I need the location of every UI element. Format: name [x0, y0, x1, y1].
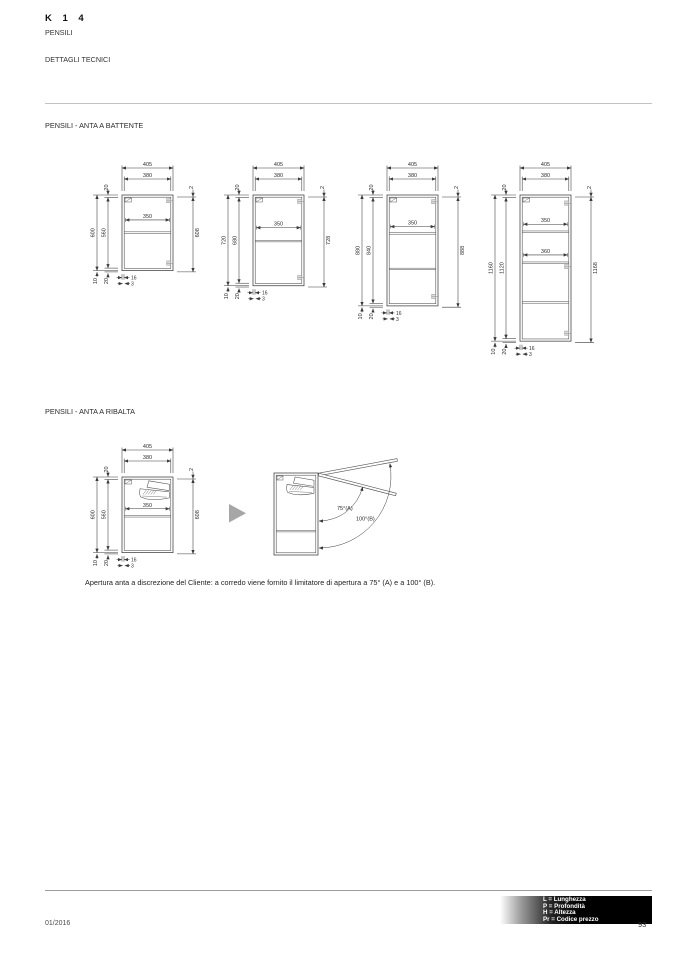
flap-door-75 [318, 473, 396, 496]
page-number: 93 [638, 920, 646, 929]
svg-text:100°(B): 100°(B) [356, 517, 375, 523]
svg-text:350: 350 [408, 221, 417, 227]
svg-text:380: 380 [143, 455, 152, 461]
svg-text:405: 405 [408, 162, 417, 168]
svg-text:560: 560 [102, 510, 108, 519]
svg-text:840: 840 [367, 246, 373, 255]
svg-text:680: 680 [233, 236, 239, 245]
svg-text:10: 10 [224, 293, 230, 299]
svg-text:1160: 1160 [489, 262, 495, 274]
right-arrow-icon [229, 504, 246, 523]
ribalta-caption: Apertura anta a discrezione del Cliente:… [85, 578, 645, 587]
svg-text:380: 380 [274, 173, 283, 179]
section-title-battente: PENSILI - ANTA A BATTENTE [45, 121, 143, 130]
svg-text:405: 405 [143, 162, 152, 168]
bottom-divider [45, 890, 652, 891]
svg-text:20: 20 [104, 466, 110, 472]
svg-text:75°(A): 75°(A) [337, 506, 353, 512]
svg-text:350: 350 [274, 222, 283, 228]
battente-cabinet-2: 4053807206802027281020163350 [222, 162, 332, 303]
svg-text:3: 3 [262, 297, 265, 303]
ribalta-technical-drawings: 405380600560202608102016335075°(A)100°(B… [0, 430, 678, 578]
svg-text:350: 350 [143, 214, 152, 220]
catalog-page: K 1 4 PENSILI DETTAGLI TECNICI PENSILI -… [0, 0, 678, 959]
top-divider [45, 103, 652, 104]
svg-text:20: 20 [369, 184, 375, 190]
legend-item-price-code: Pr = Codice prezzo [543, 917, 599, 924]
svg-text:3: 3 [131, 564, 134, 570]
svg-text:2: 2 [587, 186, 593, 189]
svg-text:20: 20 [235, 184, 241, 190]
svg-text:20: 20 [104, 278, 110, 284]
svg-text:3: 3 [131, 282, 134, 288]
svg-text:2: 2 [189, 186, 195, 189]
battente-cabinet-4: 4053801160112020211681020163350360 [489, 162, 599, 358]
svg-text:380: 380 [541, 173, 550, 179]
svg-text:3: 3 [529, 352, 532, 358]
edition-date: 01/2016 [45, 920, 70, 927]
svg-text:350: 350 [541, 218, 550, 224]
svg-text:20: 20 [502, 349, 508, 355]
svg-text:728: 728 [326, 236, 332, 245]
battente-cabinet-1: 4053806005602026081020163350 [91, 162, 201, 288]
svg-text:3: 3 [396, 317, 399, 323]
svg-text:2: 2 [454, 186, 460, 189]
svg-text:1168: 1168 [593, 262, 599, 274]
svg-text:1120: 1120 [500, 262, 506, 274]
svg-text:10: 10 [491, 349, 497, 355]
hinge-block [565, 331, 569, 335]
svg-text:20: 20 [104, 560, 110, 566]
flap-door-100 [318, 459, 397, 476]
svg-text:10: 10 [93, 278, 99, 284]
svg-text:10: 10 [93, 560, 99, 566]
svg-text:608: 608 [195, 510, 201, 519]
series-label: PENSILI [45, 28, 73, 37]
section-title-ribalta: PENSILI - ANTA A RIBALTA [45, 407, 135, 416]
svg-text:600: 600 [91, 510, 97, 519]
svg-text:350: 350 [143, 503, 152, 509]
svg-text:20: 20 [502, 184, 508, 190]
legend-box: L = Lunghezza P = Profondità H = Altezza… [500, 896, 652, 924]
svg-text:888: 888 [460, 246, 466, 255]
svg-text:2: 2 [320, 186, 326, 189]
ribalta-cabinet-open: 75°(A)100°(B) [274, 459, 397, 555]
svg-text:405: 405 [143, 444, 152, 450]
svg-text:380: 380 [408, 173, 417, 179]
ribalta-cabinet-closed: 4053806005602026081020163350 [91, 444, 201, 570]
svg-text:20: 20 [369, 313, 375, 319]
hinge-block [565, 201, 569, 205]
svg-text:560: 560 [102, 228, 108, 237]
page-subtitle: DETTAGLI TECNICI [45, 55, 110, 64]
svg-text:20: 20 [235, 293, 241, 299]
svg-text:2: 2 [189, 468, 195, 471]
svg-text:600: 600 [91, 228, 97, 237]
battente-technical-drawings: 4053806005602026081020163350405380720680… [0, 148, 678, 383]
collection-code: K 1 4 [45, 13, 88, 24]
svg-text:20: 20 [104, 184, 110, 190]
legend-lines: L = Lunghezza P = Profondità H = Altezza… [543, 897, 599, 923]
svg-text:10: 10 [358, 313, 364, 319]
svg-text:405: 405 [541, 162, 550, 168]
svg-text:608: 608 [195, 228, 201, 237]
svg-text:720: 720 [222, 236, 228, 245]
svg-text:360: 360 [541, 249, 550, 255]
svg-text:880: 880 [356, 246, 362, 255]
svg-text:380: 380 [143, 173, 152, 179]
svg-text:405: 405 [274, 162, 283, 168]
battente-cabinet-3: 4053808808402028881020163350 [356, 162, 466, 323]
